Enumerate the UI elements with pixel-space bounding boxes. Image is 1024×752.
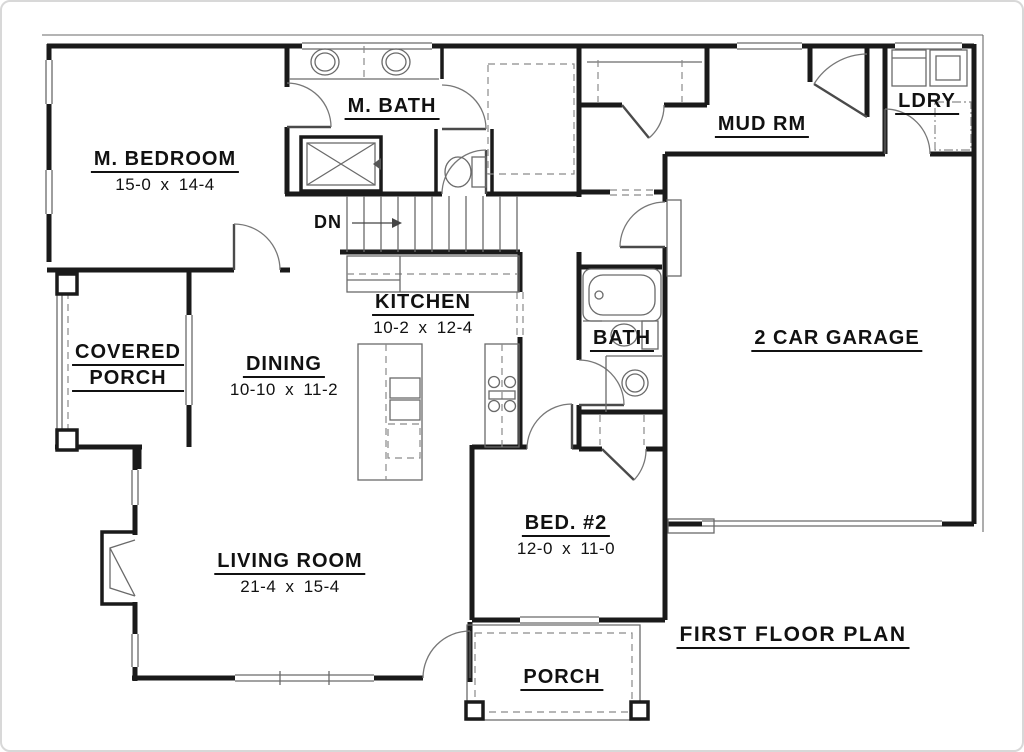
kitchen-fixtures xyxy=(347,256,519,480)
porch-post xyxy=(631,702,648,719)
stair-direction-arrow xyxy=(392,218,402,228)
porch-post xyxy=(466,702,483,719)
garage-step xyxy=(667,200,681,276)
room-label-m-bedroom: M. BEDROOM 15-0 x 14-4 xyxy=(91,148,239,195)
room-label-living-room: LIVING ROOM 21-4 x 15-4 xyxy=(214,550,365,597)
room-label-bed2: BED. #2 12-0 x 11-0 xyxy=(517,512,615,559)
fireplace xyxy=(102,532,135,604)
room-label-garage: 2 CAR GARAGE xyxy=(751,327,922,352)
room-label-kitchen: KITCHEN 10-2 x 12-4 xyxy=(372,291,474,338)
room-label-porch: PORCH xyxy=(520,666,603,691)
room-label-covered-porch: COVERED PORCH xyxy=(72,341,184,392)
walk-in-closet xyxy=(488,64,574,174)
porch-post xyxy=(57,430,77,450)
floor-plan-canvas: M. BEDROOM 15-0 x 14-4 M. BATH MUD RM LD… xyxy=(0,0,1024,752)
room-label-ldry: LDRY xyxy=(895,90,959,115)
room-label-mud-rm: MUD RM xyxy=(715,113,809,138)
porch-post xyxy=(57,274,77,294)
washer xyxy=(892,50,926,86)
closet-shelving xyxy=(587,60,702,445)
garage-details xyxy=(667,200,714,533)
room-label-dining: DINING 10-10 x 11-2 xyxy=(230,353,338,400)
toilet xyxy=(445,157,471,187)
stair-annotation-dn: DN xyxy=(314,213,342,233)
drawing-title: FIRST FLOOR PLAN xyxy=(677,623,910,649)
room-label-m-bath: M. BATH xyxy=(345,95,440,120)
roof-outline xyxy=(42,35,983,532)
room-label-bath: BATH xyxy=(590,327,654,352)
stairs xyxy=(347,196,517,252)
